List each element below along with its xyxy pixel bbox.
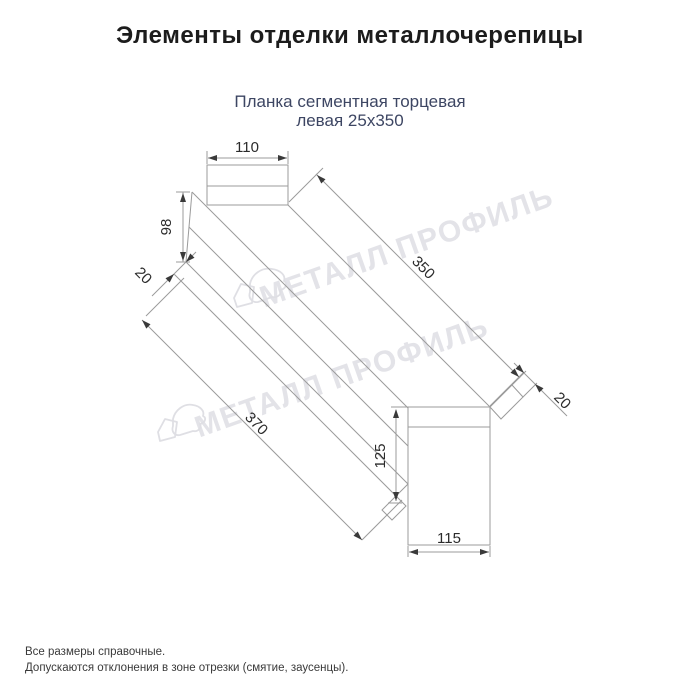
dimension-right-fold-label: 20 bbox=[550, 389, 574, 413]
watermark-text-upper: МЕТАЛЛ ПРОФИЛЬ bbox=[256, 180, 558, 314]
footnote-line1: Все размеры справочные. bbox=[25, 644, 348, 660]
watermark-text-lower: МЕТАЛЛ ПРОФИЛЬ bbox=[191, 310, 493, 444]
dimension-right-height: 125 bbox=[372, 409, 402, 503]
dimension-right-height-label: 125 bbox=[372, 443, 389, 468]
dimension-left-height: 98 bbox=[158, 192, 190, 262]
dimension-right-width-label: 115 bbox=[437, 530, 461, 547]
dimension-right-width: 115 bbox=[408, 530, 490, 557]
left-end-flange-face bbox=[207, 165, 288, 205]
right-end-face bbox=[408, 407, 490, 545]
watermark-layer: МЕТАЛЛ ПРОФИЛЬ МЕТАЛЛ ПРОФИЛЬ bbox=[158, 180, 558, 444]
dimension-top-width-label: 110 bbox=[235, 139, 259, 156]
page: Элементы отделки металлочерепицы Планка … bbox=[0, 0, 700, 700]
dimension-left-fold-label: 20 bbox=[131, 264, 155, 288]
dimension-right-fold: 20 bbox=[512, 363, 574, 416]
dimension-left-height-label: 98 bbox=[158, 219, 175, 236]
footnotes: Все размеры справочные. Допускаются откл… bbox=[25, 644, 348, 676]
dimension-top-width: 110 bbox=[207, 139, 288, 164]
footnote-line2: Допускаются отклонения в зоне отрезки (с… bbox=[25, 660, 348, 676]
technical-drawing: МЕТАЛЛ ПРОФИЛЬ МЕТАЛЛ ПРОФИЛЬ bbox=[0, 0, 700, 700]
